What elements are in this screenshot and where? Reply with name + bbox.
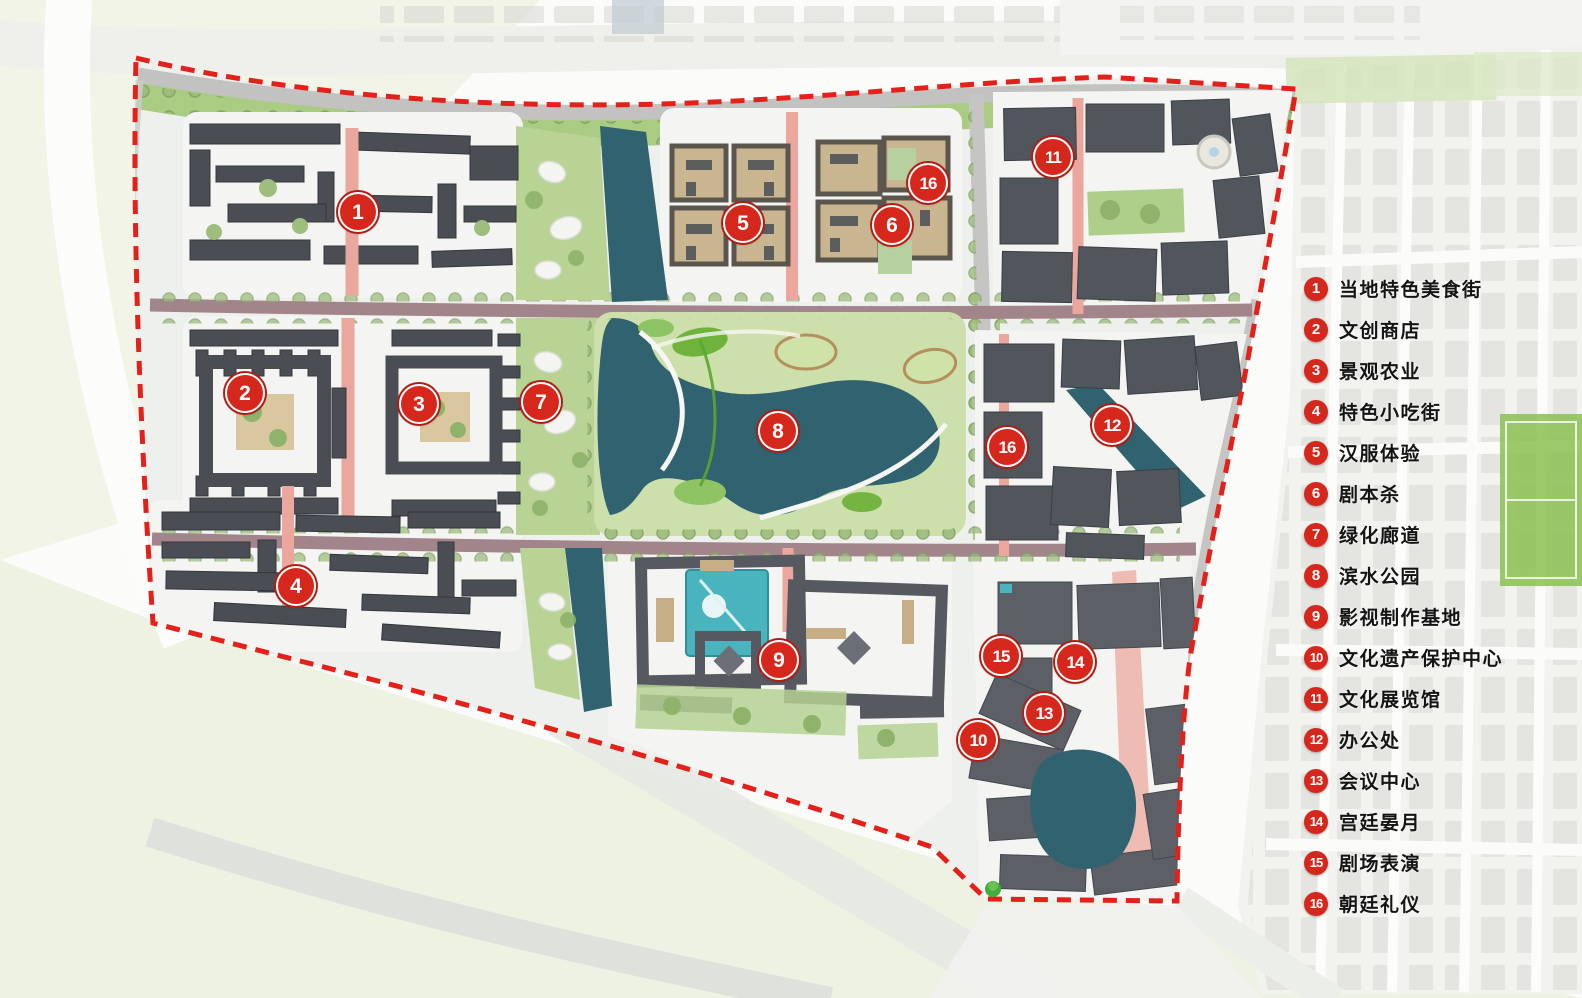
map-marker-16: 16 (987, 427, 1027, 467)
legend-item-15: 15剧场表演 (1304, 842, 1503, 883)
map-marker-8: 8 (758, 411, 798, 451)
map-marker-4: 4 (276, 566, 316, 606)
map-marker-13: 13 (1024, 693, 1064, 733)
map-marker-6: 6 (872, 205, 912, 245)
legend-label: 景观农业 (1339, 357, 1421, 384)
legend-item-16: 16朝廷礼仪 (1304, 883, 1503, 924)
legend-item-3: 3景观农业 (1304, 350, 1503, 391)
legend-label: 汉服体验 (1339, 439, 1421, 466)
map-marker-1: 1 (338, 192, 378, 232)
legend-item-13: 13会议中心 (1304, 760, 1503, 801)
legend-label: 当地特色美食街 (1339, 275, 1483, 302)
legend-label: 朝廷礼仪 (1339, 890, 1421, 917)
legend-number: 8 (1304, 564, 1328, 588)
legend-label: 剧场表演 (1339, 849, 1421, 876)
legend-label: 特色小吃街 (1339, 398, 1442, 425)
legend-label: 文创商店 (1339, 316, 1421, 343)
map-marker-2: 2 (225, 373, 265, 413)
legend-label: 文化遗产保护中心 (1339, 644, 1503, 671)
legend-number: 15 (1304, 851, 1328, 875)
legend-label: 绿化廊道 (1339, 521, 1421, 548)
legend-number: 2 (1304, 318, 1328, 342)
map-marker-14: 14 (1055, 642, 1095, 682)
legend-item-6: 6剧本杀 (1304, 473, 1503, 514)
map-marker-7: 7 (521, 382, 561, 422)
legend-number: 3 (1304, 359, 1328, 383)
map-marker-11: 11 (1033, 137, 1073, 177)
legend-number: 13 (1304, 769, 1328, 793)
legend-number: 11 (1304, 687, 1328, 711)
legend-number: 4 (1304, 400, 1328, 424)
legend-label: 办公处 (1339, 726, 1401, 753)
legend-item-12: 12办公处 (1304, 719, 1503, 760)
legend-number: 10 (1304, 646, 1328, 670)
legend-number: 12 (1304, 728, 1328, 752)
legend-item-4: 4特色小吃街 (1304, 391, 1503, 432)
legend-item-9: 9影视制作基地 (1304, 596, 1503, 637)
map-marker-9: 9 (759, 640, 799, 680)
legend-number: 5 (1304, 441, 1328, 465)
conference-pond (1030, 749, 1136, 869)
legend-item-7: 7绿化廊道 (1304, 514, 1503, 555)
legend-item-10: 10文化遗产保护中心 (1304, 637, 1503, 678)
legend-label: 影视制作基地 (1339, 603, 1462, 630)
legend-label: 会议中心 (1339, 767, 1421, 794)
map-marker-3: 3 (399, 384, 439, 424)
legend-number: 7 (1304, 523, 1328, 547)
legend-number: 6 (1304, 482, 1328, 506)
legend-item-2: 2文创商店 (1304, 309, 1503, 350)
map-marker-16: 16 (908, 163, 948, 203)
master-plan-canvas: 1234567891011121314151616 1当地特色美食街2文创商店3… (0, 0, 1582, 998)
legend-item-8: 8滨水公园 (1304, 555, 1503, 596)
map-marker-15: 15 (981, 636, 1021, 676)
legend: 1当地特色美食街2文创商店3景观农业4特色小吃街5汉服体验6剧本杀7绿化廊道8滨… (1304, 268, 1503, 924)
legend-item-5: 5汉服体验 (1304, 432, 1503, 473)
legend-label: 宫廷晏月 (1339, 808, 1421, 835)
legend-number: 1 (1304, 277, 1328, 301)
legend-number: 9 (1304, 605, 1328, 629)
legend-label: 文化展览馆 (1339, 685, 1442, 712)
map-marker-5: 5 (723, 203, 763, 243)
map-marker-10: 10 (958, 720, 998, 760)
legend-label: 滨水公园 (1339, 562, 1421, 589)
legend-number: 16 (1304, 892, 1328, 916)
legend-item-14: 14宫廷晏月 (1304, 801, 1503, 842)
legend-item-1: 1当地特色美食街 (1304, 268, 1503, 309)
legend-label: 剧本杀 (1339, 480, 1401, 507)
map-marker-12: 12 (1092, 405, 1132, 445)
legend-number: 14 (1304, 810, 1328, 834)
legend-item-11: 11文化展览馆 (1304, 678, 1503, 719)
